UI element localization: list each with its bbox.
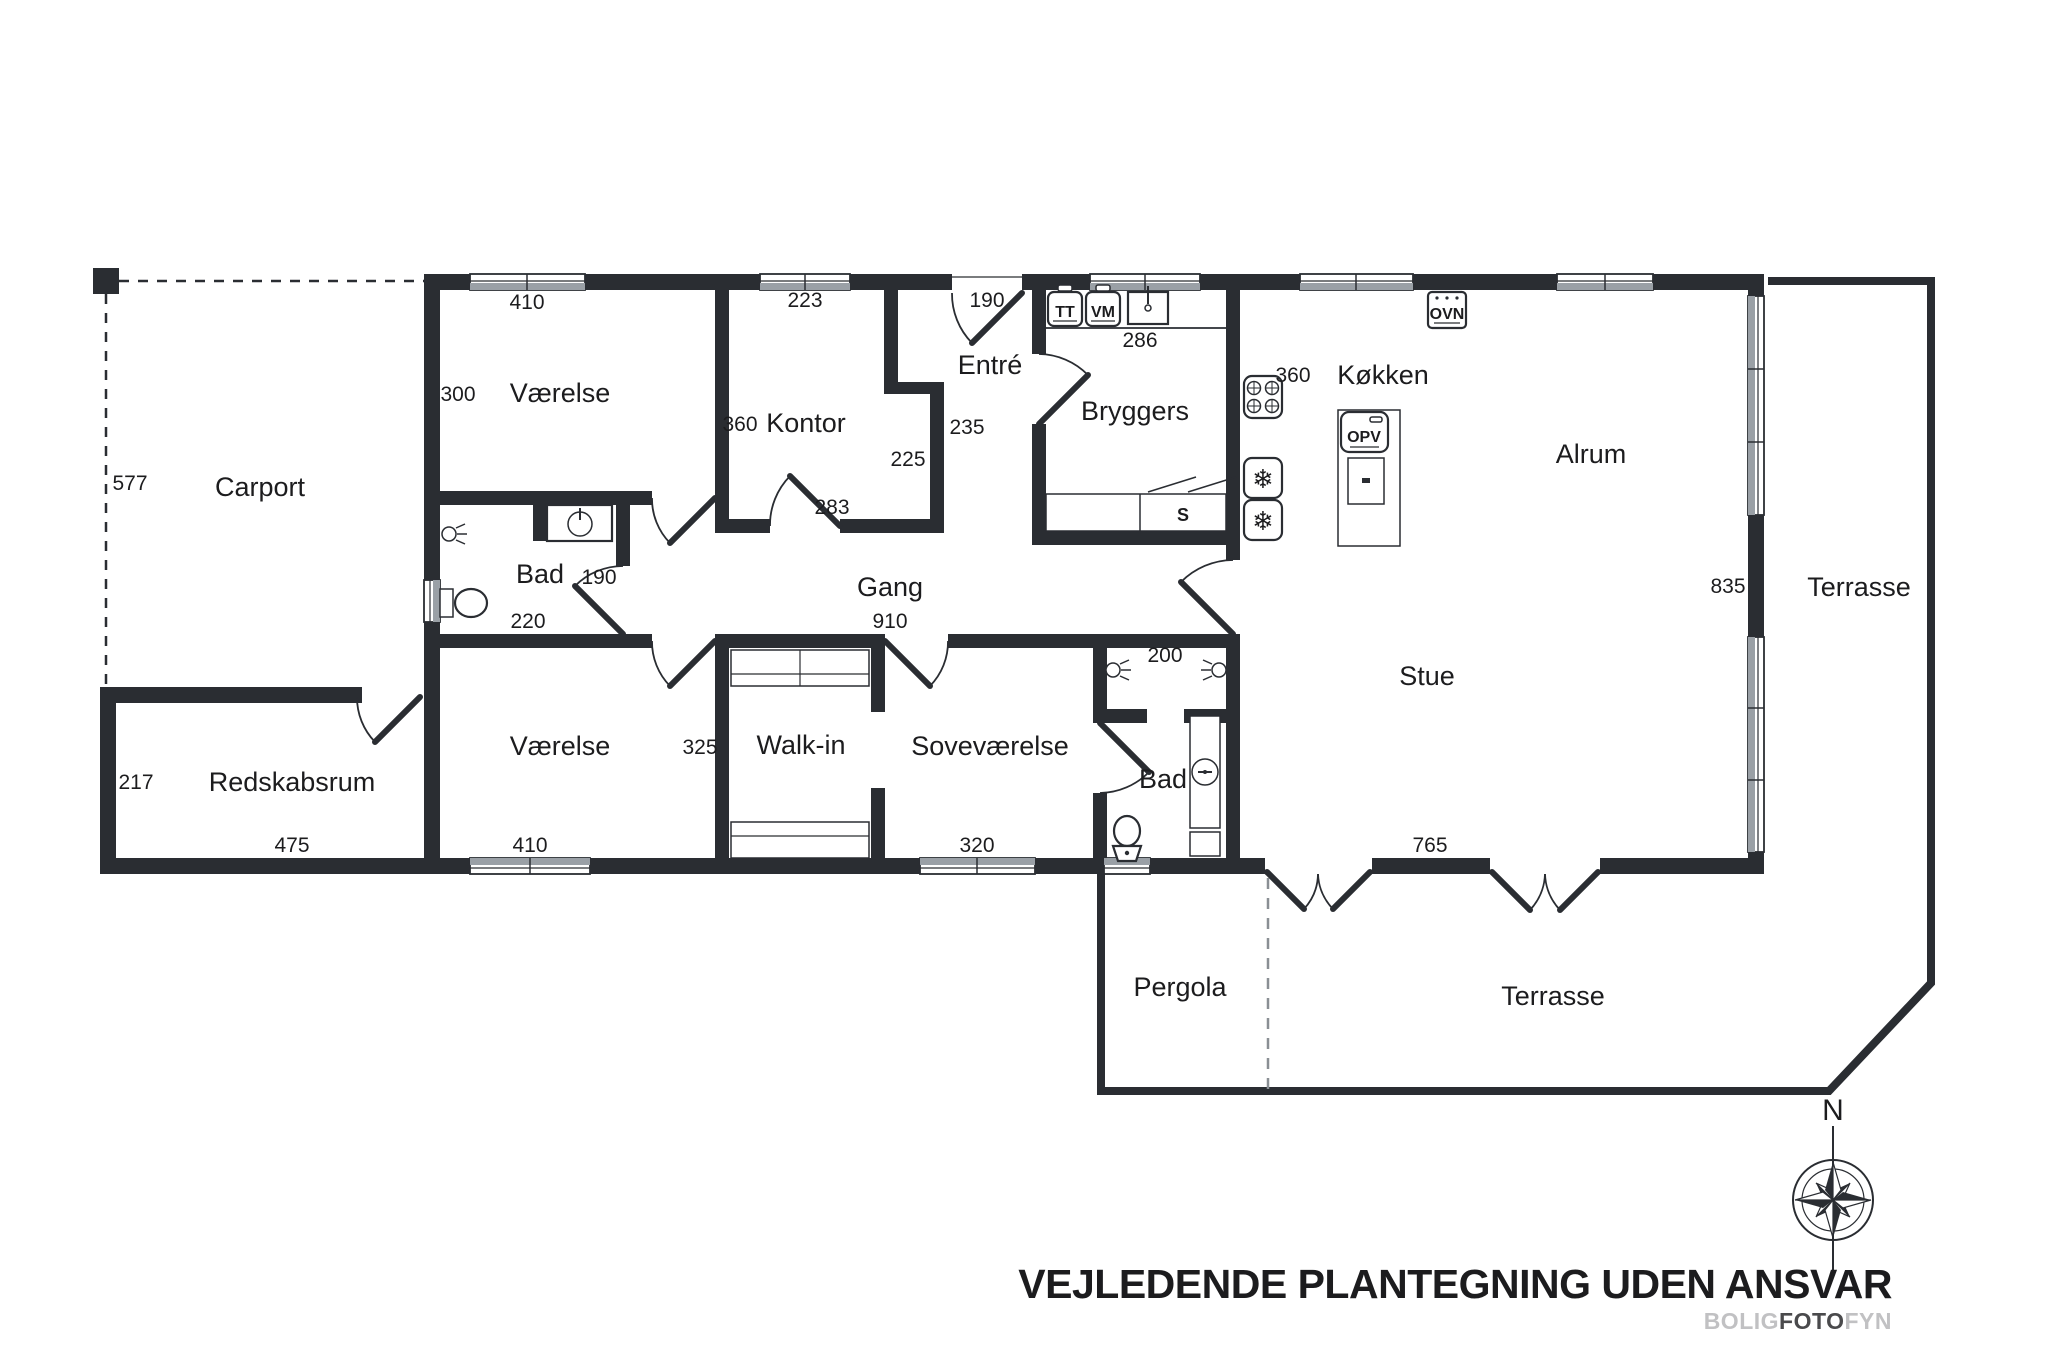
door-vaerelse-top [652, 498, 715, 543]
svg-text:OPV: OPV [1347, 429, 1381, 446]
svg-text:VM: VM [1091, 304, 1115, 321]
bryggers-sink-icon [1128, 286, 1168, 324]
room-label-terrasse-south: Terrasse [1501, 981, 1605, 1011]
wall-lamp-icon [442, 524, 467, 544]
dryer-icon: TT [1048, 285, 1082, 326]
island-sink-icon [1348, 458, 1384, 504]
room-label-bad-bottom: Bad [1139, 764, 1187, 794]
dim-carport-depth: 577 [112, 472, 147, 495]
wardrobe-icon-bottom [731, 822, 869, 858]
french-door-opening-2 [1490, 858, 1600, 874]
room-label-vaerelse-top: Værelse [510, 378, 611, 408]
washing-machine-icon: VM [1086, 285, 1120, 326]
dim-stue-width: 765 [1412, 834, 1447, 857]
room-label-terrasse-east: Terrasse [1807, 572, 1911, 602]
room-label-vaerelse-bottom: Værelse [510, 731, 611, 761]
compass-rose: N [1793, 1094, 1873, 1272]
door-vaerelse-bottom [652, 641, 715, 686]
dim-koekken-depth: 360 [1275, 364, 1310, 387]
room-label-gang: Gang [857, 572, 923, 602]
logo-foto: FOTO [1779, 1308, 1844, 1334]
title-block: VEJLEDENDE PLANTEGNING UDEN ANSVAR BOLIG… [1018, 1261, 1892, 1334]
room-label-pergola: Pergola [1133, 972, 1227, 1002]
door-sovevaerelse [885, 641, 948, 686]
dim-kontor-south: 283 [814, 496, 849, 519]
closet-s: S [1046, 477, 1236, 531]
room-label-bad-left: Bad [516, 559, 564, 589]
room-label-walkin: Walk-in [756, 730, 845, 760]
dim-entre-depth: 235 [949, 416, 984, 439]
room-label-carport: Carport [215, 472, 306, 502]
dishwasher-icon: OPV [1341, 412, 1388, 452]
compass-north-label: N [1822, 1094, 1844, 1127]
window-bad-left [424, 580, 440, 622]
dim-redskabsrum-width: 475 [274, 834, 309, 857]
bad-left-vanity [547, 505, 612, 541]
dim-redskabsrum-depth: 217 [118, 771, 153, 794]
room-label-stue: Stue [1399, 661, 1455, 691]
logo-bolig: BOLIG [1704, 1308, 1779, 1334]
wardrobe-icon-top [731, 650, 869, 686]
dim-kontor-lower: 225 [890, 448, 925, 471]
oven-icon: OVN [1428, 292, 1466, 328]
floorplan-page: TT VM S OVN [0, 0, 2048, 1365]
room-labels: Carport Redskabsrum Værelse Kontor Entré… [209, 350, 1911, 1011]
window-east-lower [1748, 637, 1764, 852]
toilet-icon-bad-bottom [1113, 816, 1141, 861]
french-door-1 [1267, 872, 1370, 909]
svg-text:OVN: OVN [1430, 306, 1465, 323]
wall-lamp-icon-left [1106, 660, 1131, 680]
window-sovevaerelse [920, 858, 1035, 874]
dim-kontor-depth: 360 [722, 413, 757, 436]
dim-vaerelse-top-depth: 300 [440, 383, 475, 406]
floorplan-drawing: TT VM S OVN [0, 0, 2048, 1365]
window-vaerelse-bottom [470, 858, 590, 874]
toilet-icon-bad-left [440, 589, 487, 617]
shower-icon [1190, 716, 1220, 856]
room-label-koekken: Køkken [1337, 360, 1429, 390]
dim-entry-door: 190 [969, 289, 1004, 312]
dim-vaerelse-bottom-width: 410 [512, 834, 547, 857]
dim-vaerelse-top-width: 410 [509, 291, 544, 314]
window-east-upper [1748, 296, 1764, 515]
dim-bad-left-width: 220 [510, 610, 545, 633]
kitchen-island: OPV [1338, 410, 1400, 546]
dim-gang-length: 910 [872, 610, 907, 633]
room-label-redskabsrum: Redskabsrum [209, 767, 376, 797]
wall-lamp-icon-right [1201, 660, 1226, 680]
window-koekken [1300, 274, 1413, 290]
dim-east-wall: 835 [1710, 575, 1745, 598]
svg-text:TT: TT [1055, 304, 1075, 321]
dim-walkin-width: 325 [682, 736, 717, 759]
window-kontor [760, 274, 850, 290]
room-label-entre: Entré [958, 350, 1023, 380]
carport-post [93, 268, 119, 294]
dim-bad-left-door: 190 [581, 566, 616, 589]
room-label-sovevaerelse: Soveværelse [911, 731, 1069, 761]
windows [424, 274, 1764, 874]
window-vaerelse-top [470, 274, 585, 290]
freezer-icon: ❄ [1244, 500, 1282, 540]
dim-kontor-width: 223 [787, 289, 822, 312]
svg-text:❄: ❄ [1252, 506, 1274, 536]
room-label-bryggers: Bryggers [1081, 396, 1189, 426]
logo: BOLIGFOTOFYN [1704, 1308, 1892, 1334]
door-gang-stue [1181, 560, 1233, 634]
compass-cardinal-points [1795, 1162, 1871, 1238]
terrace-outline [1101, 281, 1931, 1091]
room-label-kontor: Kontor [766, 408, 846, 438]
french-door-opening-1 [1265, 858, 1372, 874]
svg-text:❄: ❄ [1252, 464, 1274, 494]
dim-bad-bottom-width: 200 [1147, 644, 1182, 667]
dim-bryggers-counter: 286 [1122, 329, 1157, 352]
closet-s-label: S [1177, 505, 1189, 525]
room-label-alrum: Alrum [1556, 439, 1627, 469]
window-alrum [1557, 274, 1653, 290]
french-door-2 [1492, 872, 1598, 910]
dim-sovevaerelse-width: 320 [959, 834, 994, 857]
fridge-icon: ❄ [1244, 458, 1282, 498]
disclaimer-title: VEJLEDENDE PLANTEGNING UDEN ANSVAR [1018, 1261, 1892, 1307]
logo-fyn: FYN [1845, 1308, 1893, 1334]
door-redskabsrum [357, 697, 420, 742]
